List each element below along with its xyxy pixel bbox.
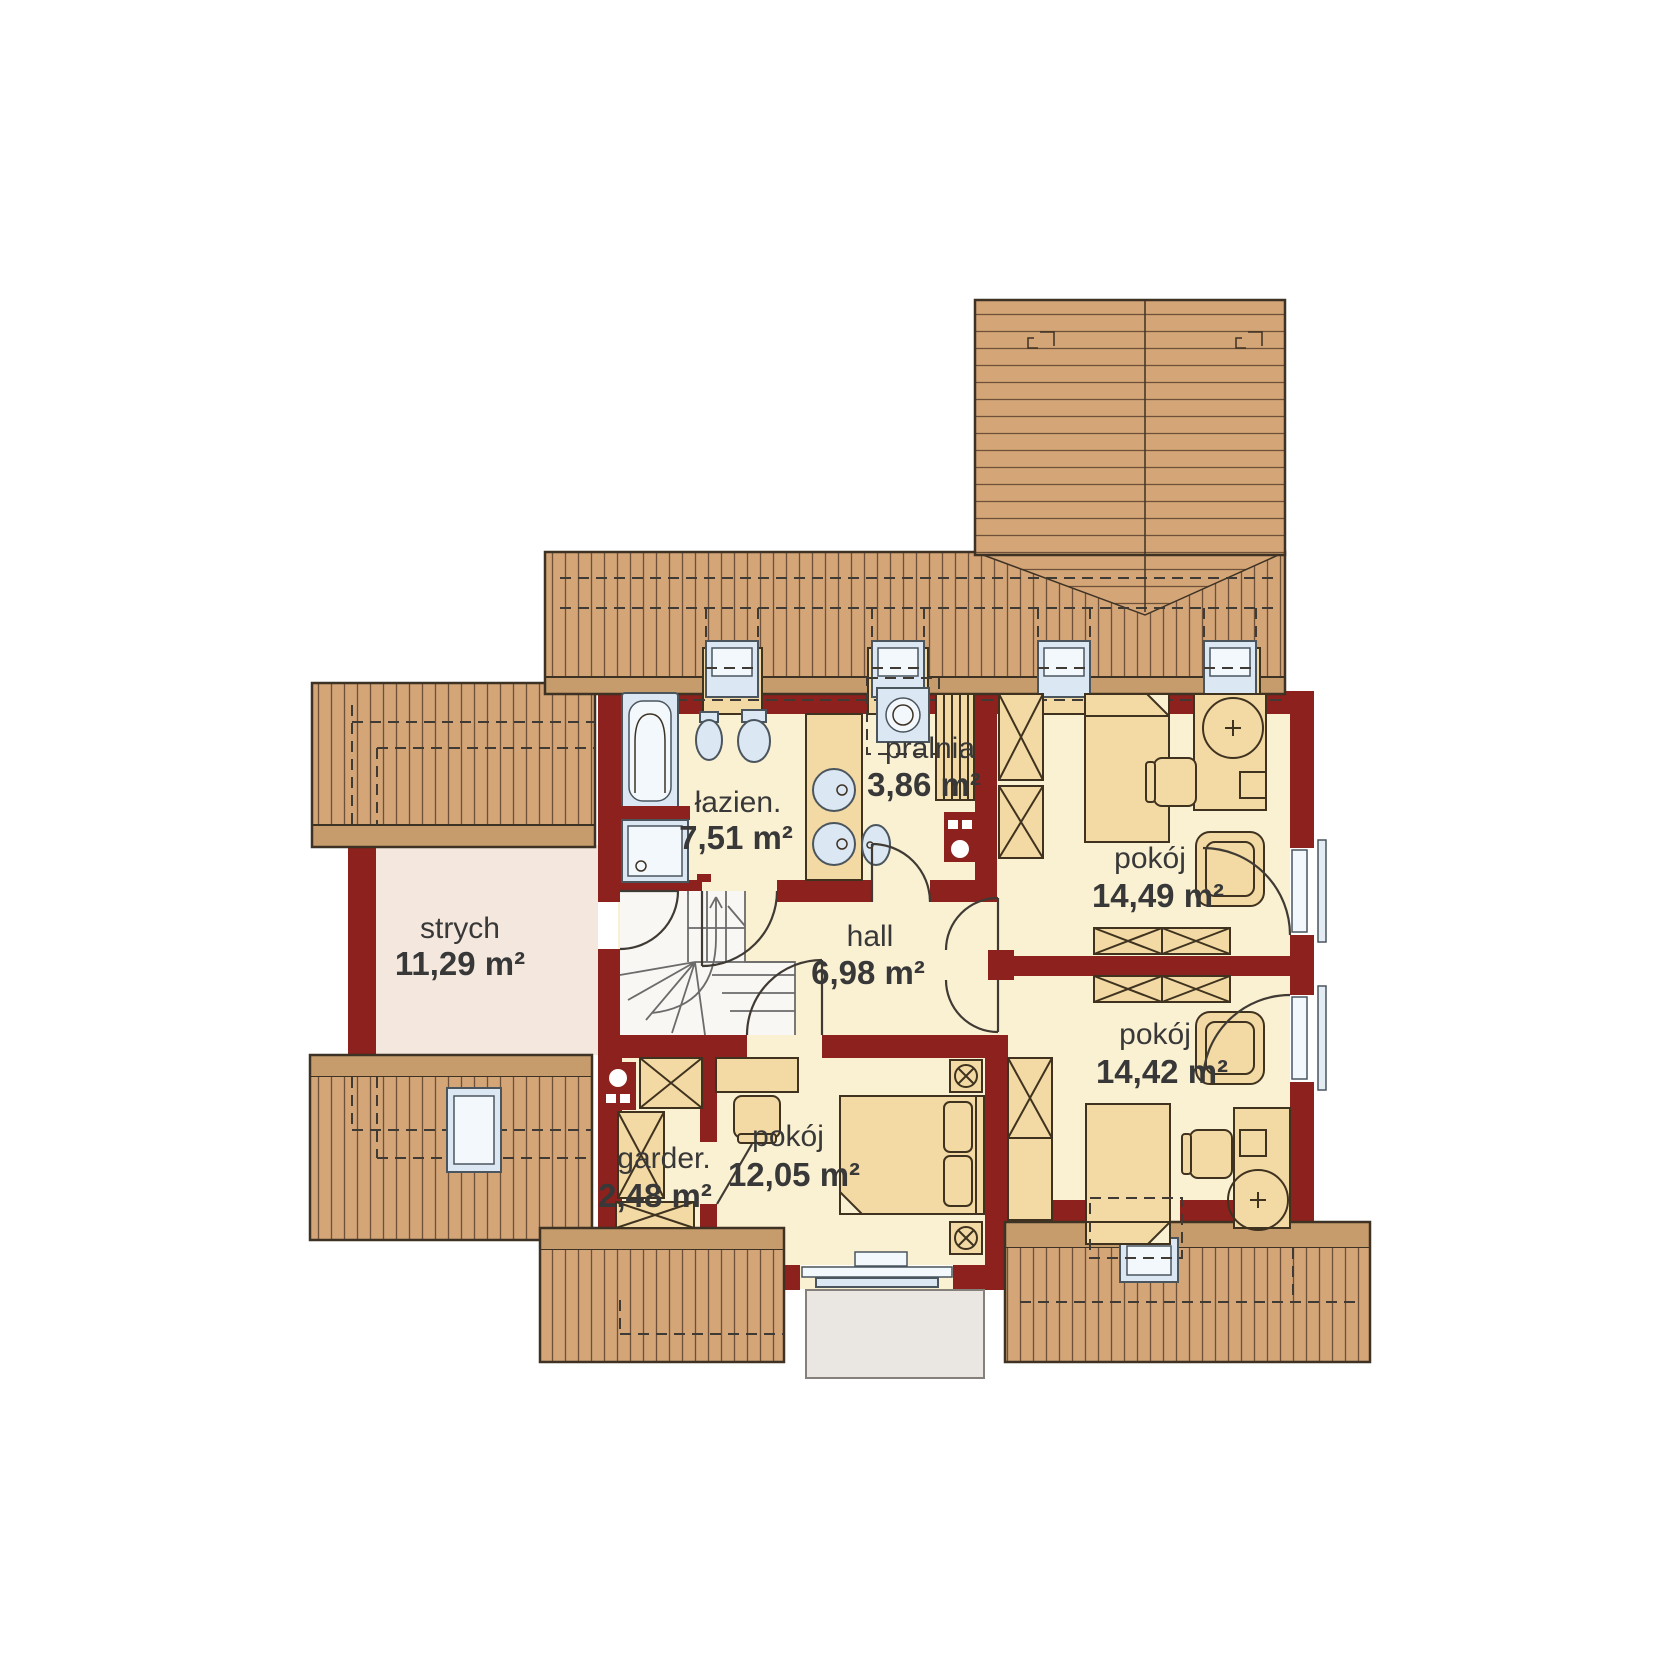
label-lazienka-name: łazien.: [695, 786, 782, 819]
wardrobe-pokoj1-b: [999, 786, 1043, 858]
wardrobe-mid-lower: [1094, 976, 1230, 1002]
wardrobe-mid-upper: [1094, 928, 1230, 954]
wall-right-2: [1290, 935, 1314, 995]
wall-stub-bath: [697, 874, 711, 882]
wardrobe-pokoj1-a: [999, 694, 1043, 780]
label-pralnia-area: 3,86 m²: [867, 766, 981, 803]
bed-pokoj2: [1086, 1104, 1170, 1244]
toilet: [738, 710, 770, 762]
floor-plan-page: strych 11,29 m² łazien. 7,51 m² pralnia …: [0, 0, 1680, 1680]
wall-hall-bottom-2: [822, 1035, 1008, 1058]
desk-pokoj3: [716, 1058, 798, 1092]
wardrobe-garder-1: [640, 1058, 702, 1108]
desk-chair-pokoj1: [1146, 758, 1196, 806]
desk-pokoj2: [1234, 1108, 1290, 1228]
skylight-window-4: [1204, 641, 1256, 697]
wall-left-upper: [598, 683, 622, 891]
bathtub: [622, 693, 678, 809]
nightstand-lamp-1: [950, 1060, 982, 1092]
label-pokoj1-name: pokój: [1114, 842, 1186, 875]
desk-pokoj1: [1194, 694, 1266, 810]
bidet: [696, 712, 722, 760]
floor-plan-drawing: strych 11,29 m² łazien. 7,51 m² pralnia …: [0, 0, 1680, 1680]
railing-2: [1318, 986, 1326, 1090]
label-strych-name: strych: [420, 912, 500, 945]
label-lazienka-area: 7,51 m²: [679, 819, 793, 856]
roof-bottom-center: [540, 1228, 784, 1362]
desk-chair-pokoj2: [1182, 1130, 1232, 1178]
wall-hall-bottom-1: [598, 1035, 747, 1058]
washbasin-2: [813, 823, 855, 865]
vanity-counter: [806, 714, 862, 880]
wardrobe-pokoj2: [1008, 1058, 1052, 1220]
label-hall-name: hall: [847, 920, 894, 953]
wall-right-3: [1290, 1082, 1314, 1228]
railing-1: [1318, 840, 1326, 942]
wall-strych-outer: [348, 845, 376, 1055]
skylight-window-1: [706, 641, 758, 697]
chimney-shaft-garder: [600, 1062, 636, 1110]
chimney-shaft-pralnia: [944, 812, 976, 862]
nightstand-lamp-2: [950, 1222, 982, 1254]
skylight-window-left: [447, 1088, 501, 1172]
roof-left-upper: [312, 683, 595, 847]
roof-left-lower: [310, 1055, 592, 1240]
washbasin-1: [813, 769, 855, 811]
label-pokoj2-area: 14,42 m²: [1096, 1053, 1228, 1090]
wall-hall-top-2: [777, 880, 872, 902]
double-bed-pokoj3: [840, 1096, 984, 1214]
label-garder-name: garder.: [617, 1142, 710, 1175]
shower: [622, 820, 688, 882]
label-pokoj2-name: pokój: [1119, 1018, 1191, 1051]
label-pokoj3-area: 12,05 m²: [728, 1156, 860, 1193]
skylight-window-3: [1038, 641, 1090, 697]
roof-bottom-right: [1005, 1222, 1370, 1362]
wall-stub-mid: [988, 950, 1014, 980]
wall-tub-shower: [620, 806, 690, 820]
label-garder-area: 2,48 m²: [598, 1177, 712, 1214]
label-pokoj1-area: 14,49 m²: [1092, 877, 1224, 914]
label-pokoj3-name: pokój: [752, 1120, 824, 1153]
balcony: [806, 1290, 984, 1378]
wall-hall-top-3: [930, 880, 990, 902]
wall-mid-pokoje: [1011, 956, 1290, 976]
wall-right-1: [1290, 693, 1314, 848]
label-strych-area: 11,29 m²: [395, 945, 525, 982]
label-hall-area: 6,98 m²: [811, 954, 925, 991]
label-pralnia-name: pralnia: [885, 732, 975, 765]
wall-bottom-12-2: [953, 1265, 1008, 1290]
